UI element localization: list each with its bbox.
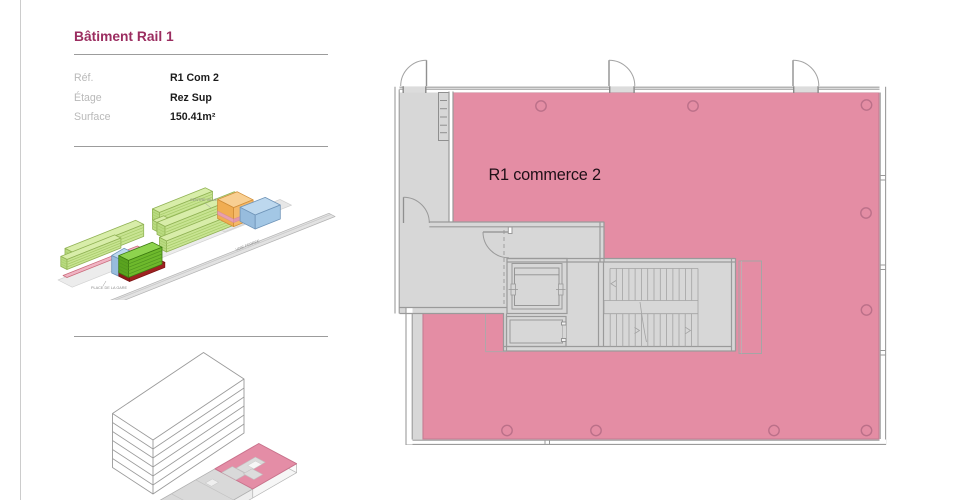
svg-text:PLACE DE LA GARE: PLACE DE LA GARE [91, 286, 128, 290]
svg-text:R1 commerce 2: R1 commerce 2 [489, 166, 601, 184]
svg-text:CENTRE VILLE: CENTRE VILLE [190, 198, 217, 202]
